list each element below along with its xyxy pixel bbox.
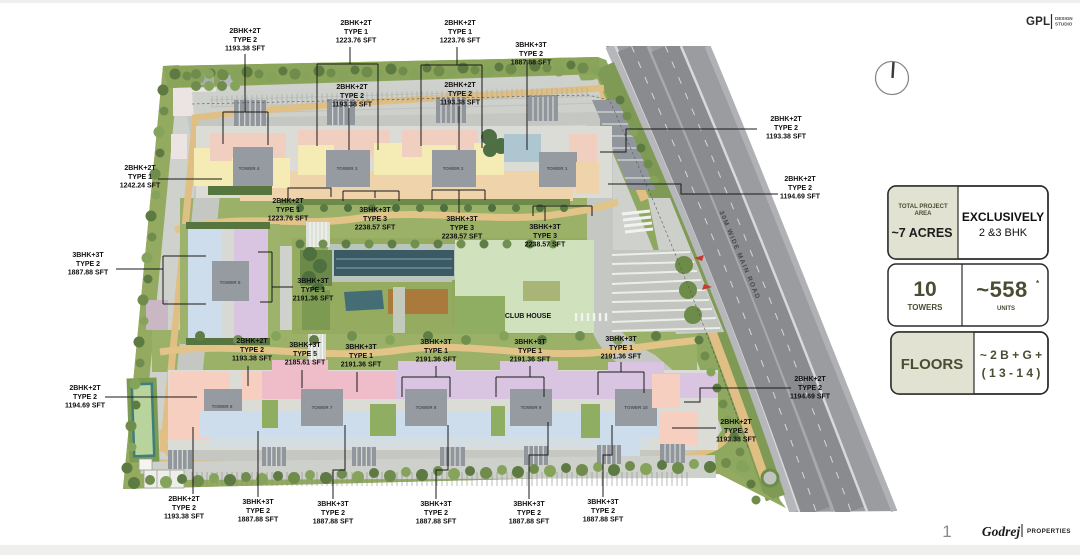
svg-text:2 &3 BHK: 2 &3 BHK <box>979 227 1028 239</box>
svg-text:TOWER 3: TOWER 3 <box>337 166 358 171</box>
svg-text:Godrej: Godrej <box>982 524 1020 539</box>
svg-text:TOWER 2: TOWER 2 <box>443 166 464 171</box>
svg-text:TOWER 8: TOWER 8 <box>416 405 437 410</box>
svg-text:GPL: GPL <box>1026 16 1050 28</box>
svg-text:TOWERS: TOWERS <box>908 303 944 312</box>
svg-text:AREA: AREA <box>914 211 932 217</box>
svg-text:DESIGN: DESIGN <box>1055 16 1073 21</box>
svg-text:TOWER 7: TOWER 7 <box>312 405 333 410</box>
svg-text:TOWER 4: TOWER 4 <box>239 166 260 171</box>
svg-text:FLOORS: FLOORS <box>901 356 964 373</box>
svg-text:~558: ~558 <box>976 277 1028 302</box>
svg-text:TOTAL PROJECT: TOTAL PROJECT <box>898 204 948 210</box>
svg-text:CLUB HOUSE: CLUB HOUSE <box>505 313 552 320</box>
svg-text:TOWER 6: TOWER 6 <box>212 404 233 409</box>
svg-text:( 1 3 - 1 4 ): ( 1 3 - 1 4 ) <box>982 366 1041 380</box>
svg-text:TOWER 1: TOWER 1 <box>547 166 568 171</box>
svg-text:~ 2 B + G +: ~ 2 B + G + <box>980 348 1042 362</box>
svg-text:UNITS: UNITS <box>997 306 1015 312</box>
svg-text:TOWER 5: TOWER 5 <box>220 280 241 285</box>
svg-text:1: 1 <box>942 522 951 541</box>
svg-text:TOWER 10: TOWER 10 <box>624 405 648 410</box>
svg-text:10: 10 <box>913 278 936 301</box>
svg-text:EXCLUSIVELY: EXCLUSIVELY <box>962 210 1044 224</box>
svg-text:~7 ACRES: ~7 ACRES <box>891 226 952 240</box>
svg-text:TOWER 9: TOWER 9 <box>521 405 542 410</box>
svg-text:PROPERTIES: PROPERTIES <box>1027 528 1071 535</box>
svg-text:STUDIO: STUDIO <box>1055 22 1073 27</box>
